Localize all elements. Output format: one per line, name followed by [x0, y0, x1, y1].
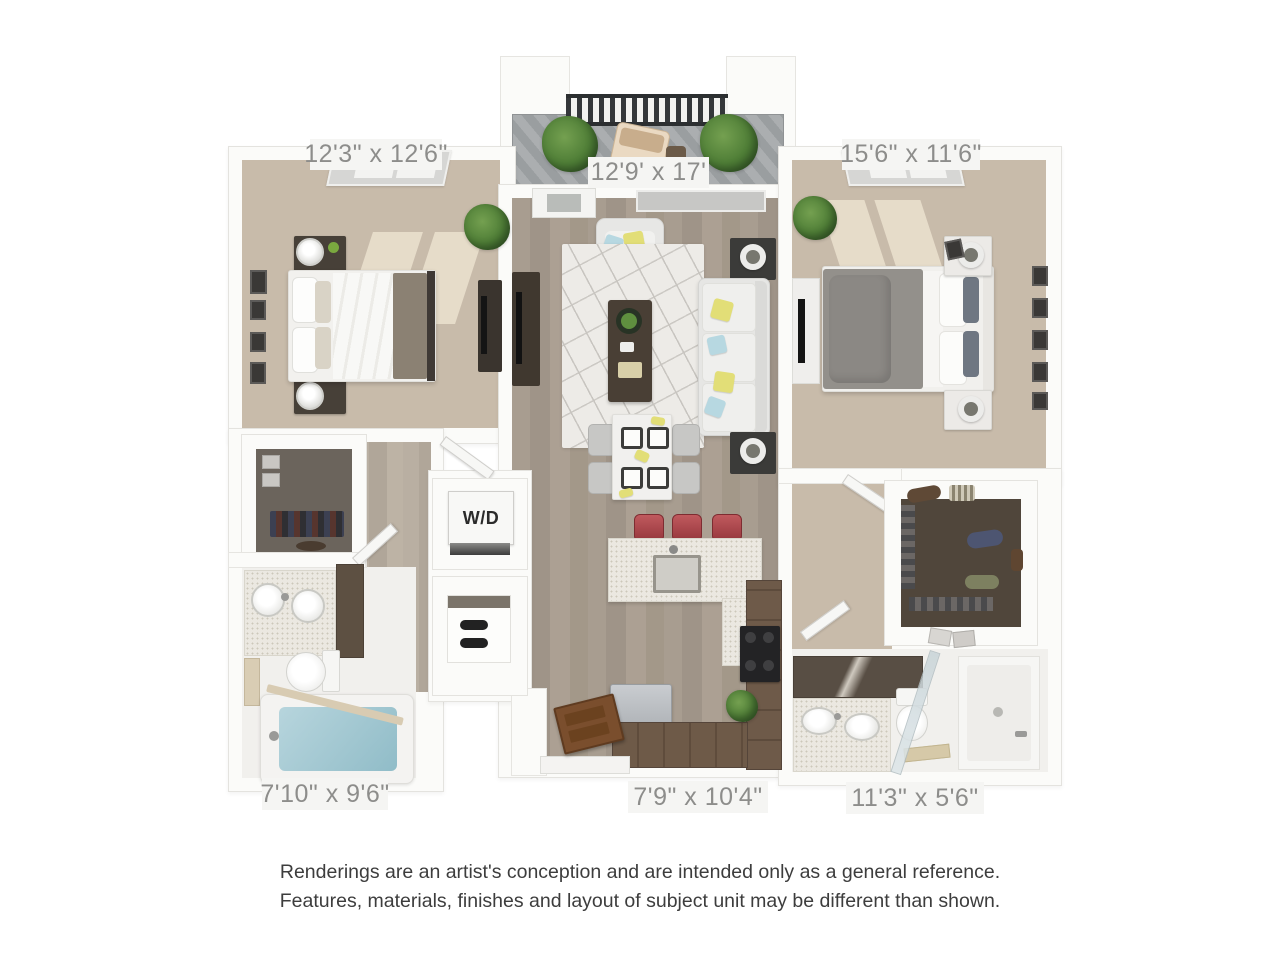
hanging-clothes: [909, 597, 993, 611]
bedroom-right-plant: [793, 196, 837, 240]
dining-table: [612, 414, 672, 500]
shoe-box: [952, 630, 976, 648]
dimension-text: 12'3" x 12'6": [304, 140, 448, 169]
dimension-text: 7'9" x 10'4": [633, 783, 762, 812]
entry-threshold: [540, 756, 630, 774]
shower-faucet: [1015, 731, 1027, 737]
media-console: [478, 280, 502, 372]
kitchen-faucet: [669, 545, 678, 554]
dimension-label-bedroom-right: 15'6" x 11'6": [842, 139, 980, 170]
coffee-table: [608, 300, 652, 402]
shoes: [460, 638, 488, 648]
hanging-clothes: [270, 511, 344, 537]
table-lamp: [958, 396, 984, 422]
balcony-glass-door: [532, 188, 596, 218]
washer-dryer-label: W/D: [449, 492, 513, 544]
dresser: [792, 278, 820, 384]
closet-right: [884, 480, 1038, 646]
wall-art: [250, 300, 266, 320]
sink: [251, 583, 285, 617]
dimension-text: 12'9' x 17': [591, 158, 707, 187]
media-console: [512, 272, 540, 386]
dimension-text: 11'3" x 5'6": [851, 784, 978, 813]
table-lamp: [296, 238, 324, 266]
wall-art: [1032, 298, 1048, 318]
table-lamp: [296, 382, 324, 410]
dining-chair: [672, 424, 700, 456]
wall-art: [1032, 330, 1048, 350]
tub-faucet: [269, 731, 279, 741]
wall-art: [1032, 266, 1048, 286]
balcony-railing: [566, 94, 728, 126]
shoe-box: [928, 627, 952, 647]
kitchen-counter-bottom: [612, 722, 748, 768]
living-window: [636, 190, 766, 212]
toilet-bowl: [286, 652, 326, 692]
washer-dryer-closet: W/D: [432, 478, 528, 570]
shoes: [460, 620, 488, 630]
washer-dryer-unit: W/D: [448, 491, 514, 545]
closet-left: [241, 434, 367, 568]
nightstand-decor: [944, 238, 965, 260]
wall-art: [1032, 392, 1048, 410]
shower-drain: [993, 707, 1003, 717]
wall-art: [1032, 362, 1048, 382]
sink: [844, 713, 880, 741]
towel-bar: [244, 658, 260, 706]
bathroom-left-cabinet: [336, 564, 364, 658]
throw-pillow: [713, 371, 736, 394]
dining-chair: [672, 462, 700, 494]
throw-pillow: [706, 334, 727, 355]
closet-left-interior: [256, 449, 352, 553]
disclaimer-line-1: Renderings are an artist's conception an…: [0, 858, 1280, 887]
decor-plant-small: [328, 242, 339, 253]
wall-art: [250, 332, 266, 352]
stove: [740, 626, 780, 682]
disclaimer-text: Renderings are an artist's conception an…: [0, 858, 1280, 916]
sink: [801, 707, 837, 735]
dimension-label-bathroom-right: 11'3" x 5'6": [846, 782, 984, 814]
bathroom-right-vanity: [793, 698, 891, 772]
bathroom-left-vanity: [244, 570, 336, 656]
wall-art: [250, 270, 267, 294]
kitchen-plant: [726, 690, 758, 722]
dimension-label-bathroom-left: 7'10" x 9'6": [262, 778, 388, 810]
coat-closet-interior: [447, 595, 511, 663]
dimension-label-bedroom-left: 12'3" x 12'6": [310, 139, 442, 170]
kitchen-sink: [653, 555, 701, 593]
dimension-label-living-room: 12'9' x 17': [588, 157, 709, 188]
coat-closet: [432, 576, 528, 696]
floor-plan-image: W/D: [0, 0, 1280, 960]
bag: [949, 485, 975, 501]
table-lamp: [740, 244, 766, 270]
bed-king: [822, 266, 994, 392]
wall-art: [250, 362, 266, 384]
shower: [958, 656, 1040, 770]
dimension-text: 7'10" x 9'6": [260, 780, 389, 809]
disclaimer-line-2: Features, materials, finishes and layout…: [0, 887, 1280, 916]
dimension-label-kitchen: 7'9" x 10'4": [628, 781, 768, 813]
dimension-text: 15'6" x 11'6": [840, 140, 982, 169]
kitchen-island: [608, 538, 762, 602]
table-lamp: [740, 438, 766, 464]
sink: [291, 589, 325, 623]
bedroom-left-plant: [464, 204, 510, 250]
bed-queen: [288, 270, 436, 382]
hanging-clothes: [901, 505, 915, 589]
closet-right-interior: [901, 499, 1021, 627]
